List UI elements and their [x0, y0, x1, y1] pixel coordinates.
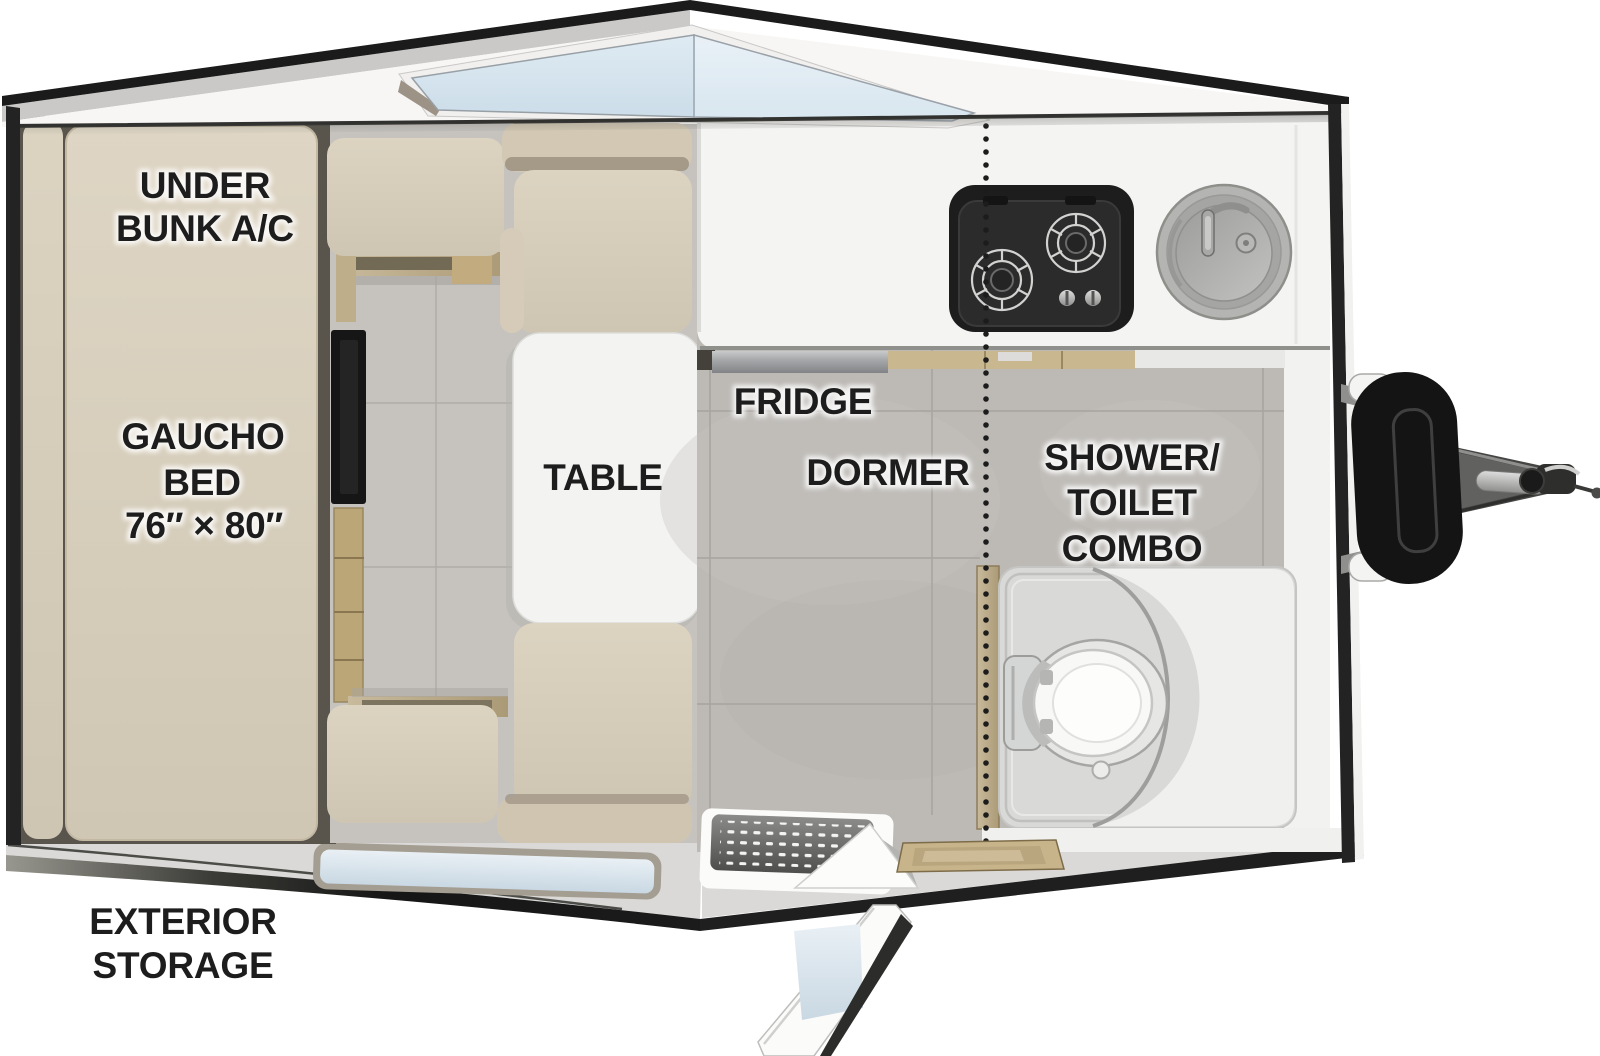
svg-text:SHOWER/: SHOWER/: [1044, 437, 1219, 478]
svg-text:STORAGE: STORAGE: [93, 945, 274, 986]
svg-text:BED: BED: [163, 462, 241, 503]
svg-text:UNDER: UNDER: [140, 165, 271, 206]
svg-text:TABLE: TABLE: [543, 457, 663, 498]
svg-text:BUNK A/C: BUNK A/C: [116, 208, 294, 249]
svg-text:COMBO: COMBO: [1062, 528, 1203, 569]
svg-text:GAUCHO: GAUCHO: [121, 416, 284, 457]
svg-text:FRIDGE: FRIDGE: [734, 381, 873, 422]
svg-text:EXTERIOR: EXTERIOR: [89, 901, 277, 942]
svg-text:76″ × 80″: 76″ × 80″: [125, 505, 284, 546]
svg-text:DORMER: DORMER: [806, 452, 969, 493]
svg-text:TOILET: TOILET: [1067, 482, 1197, 523]
